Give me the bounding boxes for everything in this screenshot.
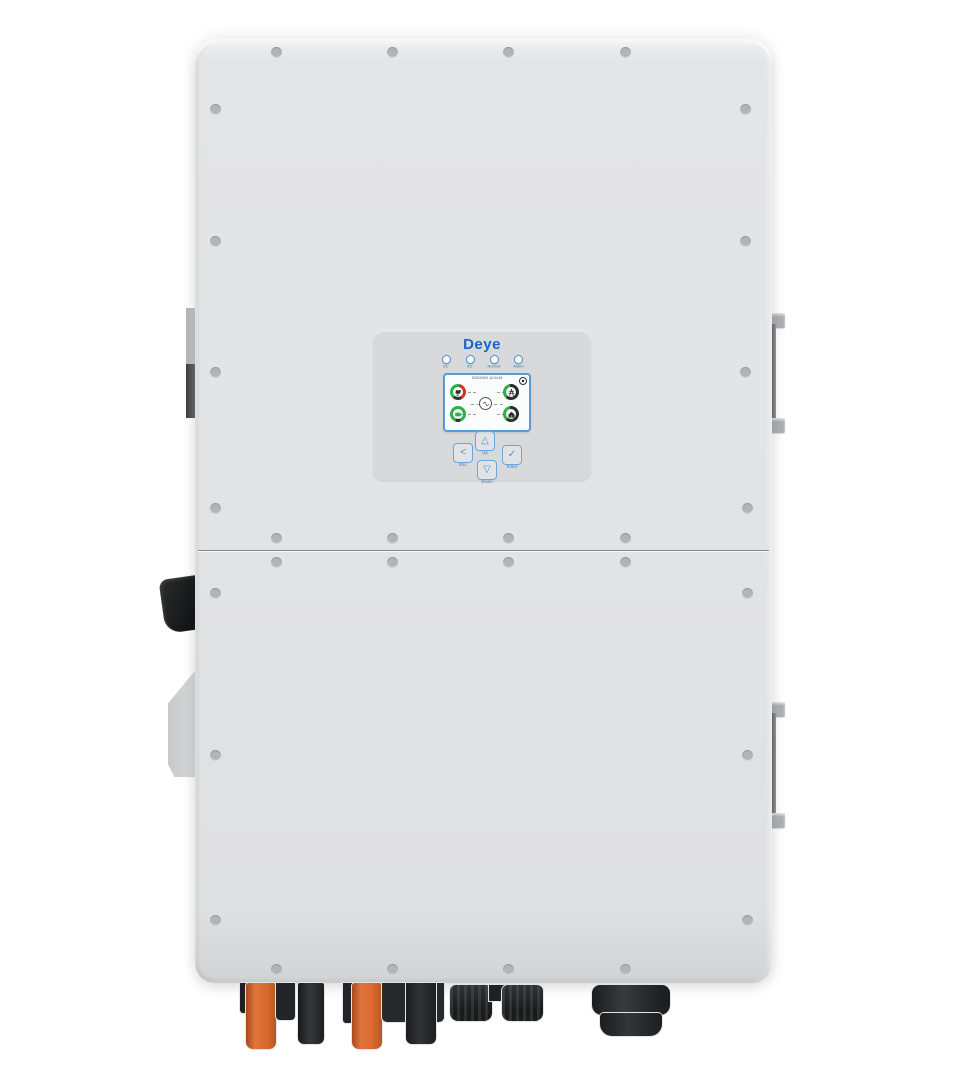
screw — [740, 367, 751, 378]
screw — [210, 750, 221, 761]
screw — [620, 964, 631, 975]
pv-value: 0W — [451, 396, 465, 400]
screw — [620, 47, 631, 58]
screw — [210, 236, 221, 247]
screw — [210, 503, 221, 514]
led-label: Normal — [488, 364, 501, 369]
grid-gauge: 0W — [503, 384, 519, 400]
esc-glyph: < — [454, 444, 472, 462]
screw — [271, 533, 282, 544]
screw — [503, 47, 514, 58]
screw — [503, 557, 514, 568]
chassis-seam — [198, 550, 769, 551]
top-lid-highlight — [199, 38, 768, 48]
ac-cable-gland-body — [592, 985, 670, 1015]
flow-line — [468, 414, 476, 415]
up-glyph: △ — [476, 432, 494, 450]
screw — [740, 104, 751, 115]
pv-mc4-gland-2 — [502, 985, 543, 1021]
right-handle-lower — [770, 702, 788, 828]
screw — [742, 588, 753, 599]
flow-line — [468, 392, 476, 393]
screw — [271, 964, 282, 975]
screw — [210, 104, 221, 115]
screw — [740, 236, 751, 247]
down-button[interactable]: ▽ Down — [477, 460, 497, 480]
screw — [210, 915, 221, 926]
screw — [620, 557, 631, 568]
screw — [387, 964, 398, 975]
screw — [210, 588, 221, 599]
status-led-row: DC AC Normal Alarm — [372, 355, 592, 373]
led-label: AC — [467, 364, 473, 369]
led-ac: AC — [458, 355, 482, 373]
esc-label: Esc — [453, 462, 474, 467]
dc-led-icon — [442, 355, 451, 364]
screw — [742, 750, 753, 761]
down-label: Down — [477, 479, 498, 484]
battery-gauge: 0W — [450, 406, 466, 422]
handle-bracket — [770, 813, 785, 828]
led-label: Alarm — [513, 364, 523, 369]
normal-led-icon — [490, 355, 499, 364]
led-normal: Normal — [482, 355, 506, 373]
screw — [503, 964, 514, 975]
down-glyph: ▽ — [478, 461, 496, 479]
load-gauge: 0W — [503, 406, 519, 422]
brand-logo: Deye — [372, 336, 592, 353]
pv-gauge: 0W — [450, 384, 466, 400]
up-label: Up — [475, 450, 496, 455]
screw — [620, 533, 631, 544]
inverter-body: Deye DC AC Normal Alarm — [195, 38, 772, 983]
black-connector-1 — [298, 983, 324, 1044]
screw — [742, 503, 753, 514]
enter-label: Enter — [502, 464, 523, 469]
pv-mc4-gland-1 — [450, 985, 492, 1021]
lcd-screen: 2020/09/01 10:34:45 0W — [443, 373, 531, 432]
alarm-led-icon — [514, 355, 523, 364]
battery-value: 0W — [451, 418, 465, 422]
ac-cable-gland-cap — [600, 1013, 662, 1036]
esc-button[interactable]: < Esc — [453, 443, 473, 463]
product-photo-stage: Deye DC AC Normal Alarm — [0, 0, 970, 1080]
screw — [271, 557, 282, 568]
enter-glyph: ✓ — [503, 446, 521, 464]
black-connector-small — [276, 983, 295, 1020]
screw — [387, 47, 398, 58]
screw — [503, 533, 514, 544]
load-value: 0W — [504, 418, 518, 422]
enter-button[interactable]: ✓ Enter — [502, 445, 522, 465]
screw — [210, 367, 221, 378]
screw — [742, 915, 753, 926]
led-alarm: Alarm — [506, 355, 530, 373]
screen-timestamp: 2020/09/01 10:34:45 — [469, 376, 504, 380]
led-label: DC — [443, 364, 449, 369]
led-dc: DC — [434, 355, 458, 373]
control-panel: Deye DC AC Normal Alarm — [372, 330, 592, 482]
screw — [387, 533, 398, 544]
settings-gear-icon — [519, 377, 527, 385]
battery-connector-orange-2 — [352, 983, 382, 1049]
right-handle-upper — [770, 313, 788, 433]
handle-bracket — [770, 418, 785, 433]
screw — [271, 47, 282, 58]
flow-line — [494, 404, 503, 405]
up-button[interactable]: △ Up — [475, 431, 495, 451]
ac-led-icon — [466, 355, 475, 364]
black-connector-2 — [406, 983, 436, 1044]
screw — [387, 557, 398, 568]
battery-connector-orange-1 — [246, 983, 276, 1049]
grid-value: 0W — [504, 396, 518, 400]
inverter-node-icon — [479, 397, 492, 410]
